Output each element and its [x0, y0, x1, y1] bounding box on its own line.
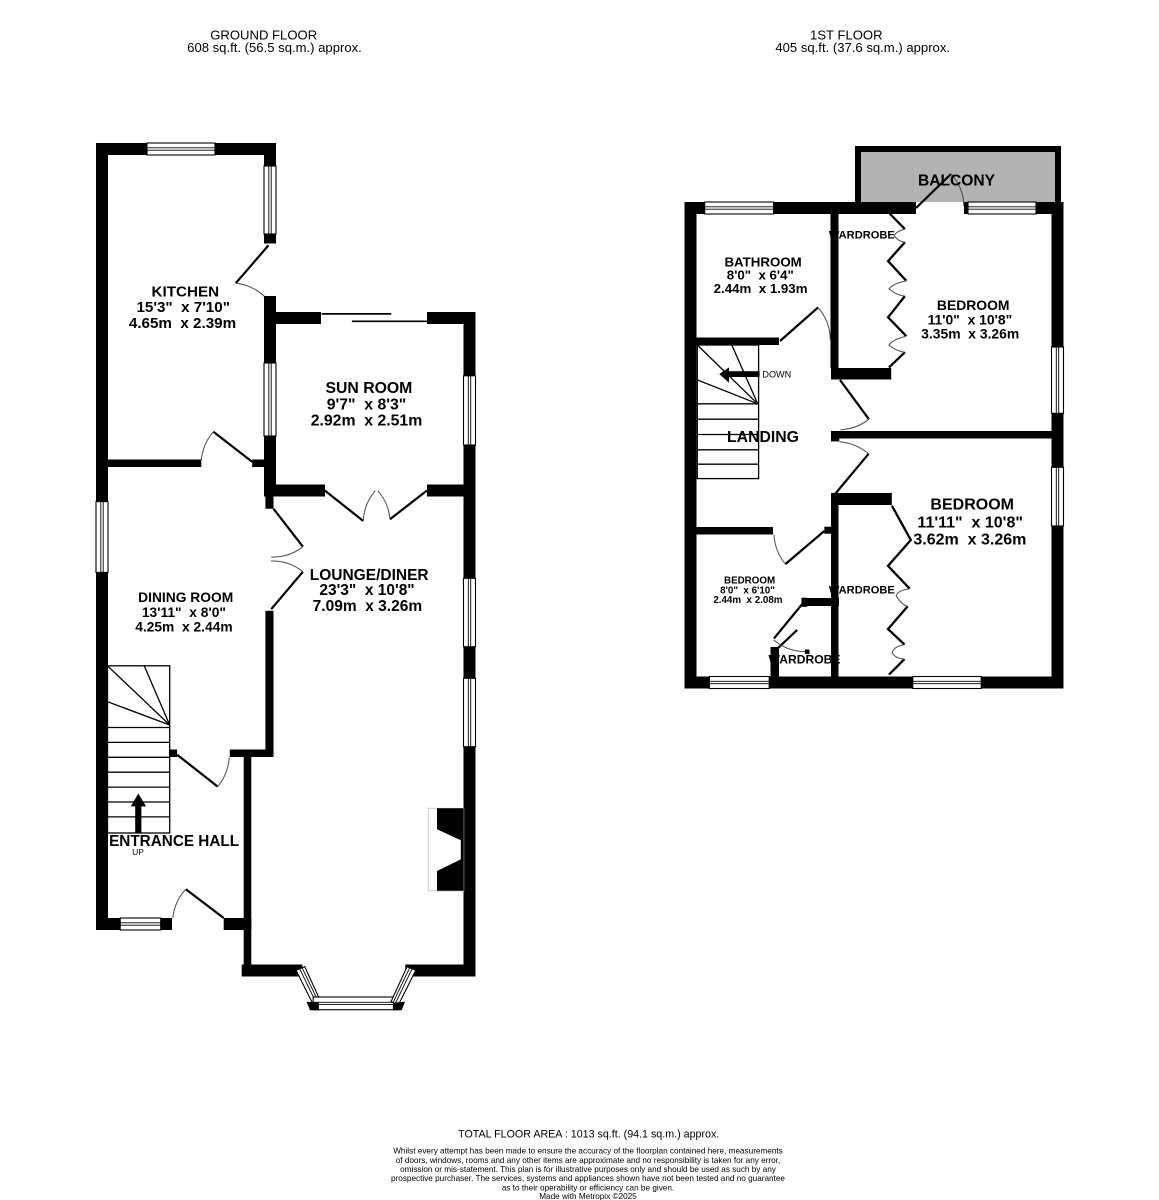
svg-text:4.25m x 2.44m: 4.25m x 2.44m	[135, 620, 232, 635]
svg-text:23'3" x 10'8": 23'3" x 10'8"	[319, 582, 414, 599]
svg-text:LANDING: LANDING	[727, 429, 799, 446]
svg-text:WARDROBE: WARDROBE	[829, 585, 895, 597]
svg-text:WARDROBE: WARDROBE	[769, 652, 841, 666]
svg-text:608 sq.ft. (56.5 sq.m.) approx: 608 sq.ft. (56.5 sq.m.) approx.	[187, 40, 362, 55]
svg-text:UP: UP	[132, 847, 144, 857]
svg-text:DINING ROOM: DINING ROOM	[138, 590, 233, 605]
svg-text:3.62m x 3.26m: 3.62m x 3.26m	[913, 531, 1026, 548]
svg-text:of doors, windows, rooms and a: of doors, windows, rooms and any other i…	[396, 1156, 781, 1165]
svg-text:3.35m x 3.26m: 3.35m x 3.26m	[921, 326, 1019, 342]
svg-text:7.09m x 3.26m: 7.09m x 3.26m	[313, 598, 422, 615]
svg-text:9'7" x 8'3": 9'7" x 8'3"	[327, 396, 407, 413]
svg-text:WARDROBE: WARDROBE	[829, 229, 895, 241]
svg-text:11'11" x 10'8": 11'11" x 10'8"	[917, 515, 1023, 532]
svg-text:BALCONY: BALCONY	[918, 173, 996, 190]
svg-text:TOTAL FLOOR AREA : 1013 sq.ft.: TOTAL FLOOR AREA : 1013 sq.ft. (94.1 sq.…	[458, 1128, 719, 1140]
svg-text:SUN ROOM: SUN ROOM	[325, 380, 412, 397]
svg-text:Whilst every attempt has been: Whilst every attempt has been made to en…	[393, 1147, 783, 1156]
svg-text:DOWN: DOWN	[762, 370, 791, 380]
svg-text:2.44m x 1.93m: 2.44m x 1.93m	[714, 281, 808, 296]
svg-text:15'3" x 7'10": 15'3" x 7'10"	[136, 299, 229, 316]
svg-text:4.65m x 2.39m: 4.65m x 2.39m	[129, 315, 236, 332]
svg-text:KITCHEN: KITCHEN	[152, 284, 220, 301]
svg-text:BEDROOM: BEDROOM	[930, 496, 1014, 513]
svg-text:2.44m x 2.08m: 2.44m x 2.08m	[713, 595, 782, 606]
svg-text:Made with Metropix ©2025: Made with Metropix ©2025	[539, 1192, 637, 1200]
svg-text:2.92m x 2.51m: 2.92m x 2.51m	[311, 412, 423, 429]
svg-text:ENTRANCE HALL: ENTRANCE HALL	[109, 833, 239, 850]
svg-text:prospective purchaser. The ser: prospective purchaser. The services, sys…	[391, 1174, 785, 1183]
svg-text:13'11" x 8'0": 13'11" x 8'0"	[142, 605, 226, 620]
svg-text:omission or mis-statement. Thi: omission or mis-statement. This plan is …	[400, 1165, 777, 1174]
svg-text:405 sq.ft. (37.6 sq.m.) approx: 405 sq.ft. (37.6 sq.m.) approx.	[775, 40, 950, 55]
